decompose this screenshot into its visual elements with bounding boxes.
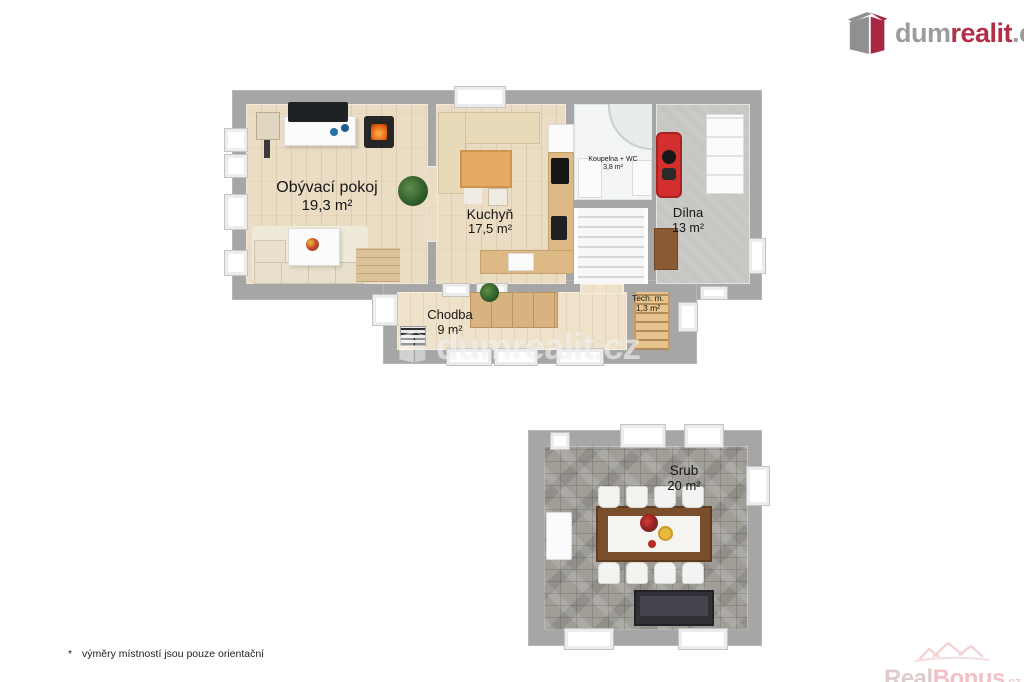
tv-screen [288, 102, 348, 122]
floor-lamp-stand [264, 140, 270, 158]
cabin-chair [598, 562, 620, 584]
room-label-hallway: Chodba 9 m² [427, 308, 473, 337]
room-name: Kuchyň [467, 206, 514, 222]
window-bay [454, 86, 506, 108]
flower-decoration [640, 514, 658, 532]
brand-logo-text: dumrealit.cz [895, 18, 1024, 49]
room-area: 1,3 m² [632, 304, 664, 314]
realbonus-part-real: Real [884, 665, 933, 682]
potted-plant [398, 176, 428, 206]
doormat-shoe-rack [400, 326, 426, 346]
room-name: Dílna [672, 206, 704, 221]
cabin-chair [626, 562, 648, 584]
oven [551, 216, 567, 240]
room-label-tech: Tech. m. 1,3 m² [632, 294, 664, 314]
decor-bowl [330, 128, 338, 136]
footnote-marker: * [68, 648, 72, 660]
logo-part-realit: realit [951, 18, 1013, 48]
window-bay [446, 348, 492, 366]
decor-bowl [658, 526, 673, 541]
door-bay [678, 302, 698, 332]
wooden-steps [356, 248, 400, 282]
rooftops-icon [913, 640, 991, 662]
staircase [574, 208, 648, 284]
door-bay [700, 286, 728, 300]
room-area: 9 m² [427, 323, 473, 337]
cabin-chair [682, 562, 704, 584]
entrance-door-leaf [372, 294, 398, 326]
room-label-srub: Srub 20 m² [667, 463, 700, 493]
window-bay [224, 154, 248, 178]
fridge [548, 124, 574, 154]
floorplan-page: dumrealit.cz [0, 0, 1024, 682]
dining-table [460, 150, 512, 188]
lawnmower [656, 132, 682, 198]
window-bay [494, 348, 538, 366]
footnote: * výměry místností jsou pouze orientační [68, 648, 264, 660]
fireplace-fire [371, 124, 387, 140]
floor-lamp [256, 112, 280, 140]
cooktop [551, 158, 569, 184]
potted-plant [480, 283, 499, 302]
door-bay [748, 238, 766, 274]
storage-shelf [706, 114, 744, 194]
window-bay [564, 628, 614, 650]
room-name: Obývací pokoj [276, 179, 377, 197]
footnote-text: výměry místností jsou pouze orientační [82, 648, 264, 660]
sink [508, 253, 534, 271]
cabin-chair [654, 562, 676, 584]
fruit-bowl [306, 238, 319, 251]
dining-chair [464, 188, 482, 204]
cabin-sofa-seat [640, 596, 708, 616]
window-bay [684, 424, 724, 448]
realbonus-text: RealBonus.cz [884, 667, 1020, 682]
decor-bowl [341, 124, 349, 132]
room-name: Koupelna + WC [588, 156, 637, 164]
window-bay [224, 128, 248, 152]
room-area: 17,5 m² [467, 222, 514, 237]
room-label-workshop: Dílna 13 m² [672, 206, 704, 235]
room-area: 13 m² [672, 221, 704, 235]
dining-chair [488, 188, 508, 206]
room-label-bathroom: Koupelna + WC 3,8 m² [588, 156, 637, 172]
realbonus-part-bonus: Bonus [933, 665, 1005, 682]
cabin-chair [626, 486, 648, 508]
room-area: 19,3 m² [276, 197, 377, 214]
cabin-chair [598, 486, 620, 508]
room-area: 20 m² [667, 479, 700, 494]
door-bay [746, 466, 770, 506]
realbonus-watermark: RealBonus.cz [884, 640, 1020, 682]
room-label-kitchen: Kuchyň 17,5 m² [467, 206, 514, 237]
window-bay [224, 250, 248, 276]
window-bay [550, 432, 570, 450]
lawnmower-seat [662, 150, 676, 164]
cabin-fridge [546, 512, 572, 560]
logo-part-cz: .cz [1012, 18, 1024, 48]
living-kitchen-passage [426, 166, 438, 242]
window-bay [620, 424, 666, 448]
room-name: Chodba [427, 308, 473, 323]
brand-logo: dumrealit.cz [848, 10, 1024, 56]
room-name: Srub [667, 463, 700, 479]
stairs-hallway-opening [580, 284, 624, 294]
door-bay [442, 283, 470, 297]
lawnmower-engine [662, 168, 676, 180]
window-bay [556, 348, 604, 366]
decor-apple [648, 540, 656, 548]
logo-part-dum: dum [895, 18, 951, 48]
room-area: 3,8 m² [588, 164, 637, 172]
window-bay [224, 194, 248, 230]
door-bay [678, 628, 728, 650]
logo-cube-icon [848, 10, 888, 56]
realbonus-part-cz: .cz [1005, 674, 1021, 682]
room-label-living: Obývací pokoj 19,3 m² [276, 179, 377, 215]
